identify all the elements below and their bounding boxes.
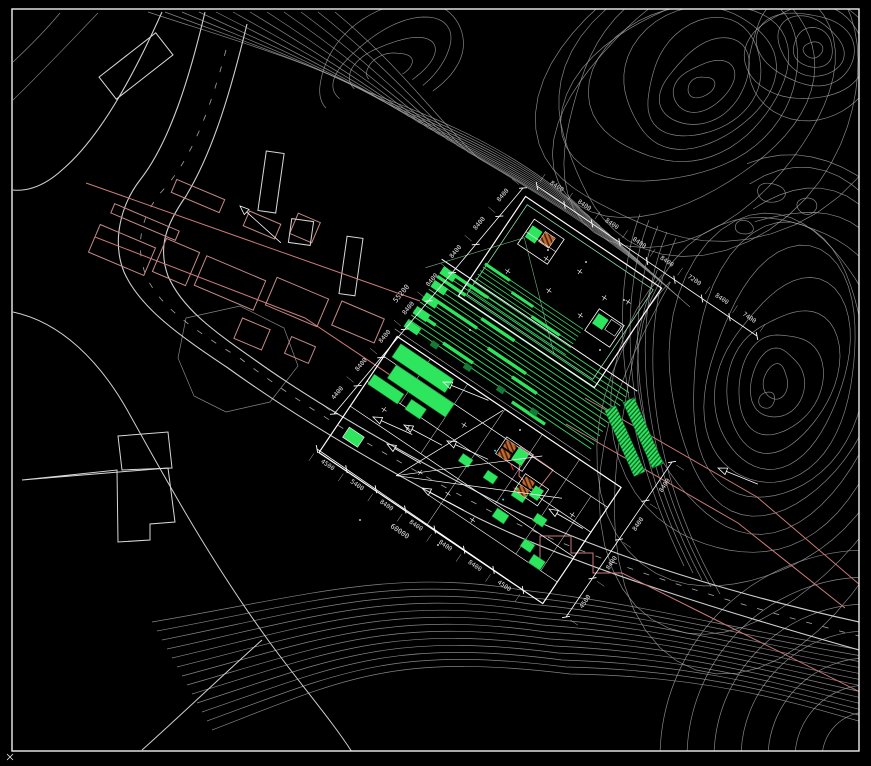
leader-arrow [718, 468, 758, 484]
site-plan-canvas: 4400840084008400840084008400840055200840… [0, 0, 871, 766]
svg-text:8400: 8400 [604, 217, 620, 231]
dimension-chain-sw: 450054008400840084008400450060000 [309, 445, 524, 602]
svg-text:4400: 4400 [330, 385, 345, 401]
cad-drawing: Architectural site plan - CAD drawing wi… [0, 0, 871, 766]
annotation-arrows [240, 206, 758, 546]
svg-text:8400: 8400 [714, 292, 730, 306]
svg-text:7200: 7200 [686, 273, 702, 287]
svg-text:8400: 8400 [378, 328, 393, 344]
svg-text:8400: 8400 [631, 236, 647, 250]
svg-text:55200: 55200 [392, 283, 412, 304]
leader-arrow [240, 206, 281, 243]
svg-text:8400: 8400 [496, 187, 511, 203]
svg-text:8400: 8400 [472, 215, 487, 231]
leader-arrow [549, 509, 583, 529]
svg-text:60000: 60000 [389, 522, 411, 541]
leader-arrow [387, 444, 421, 464]
svg-text:7400: 7400 [741, 311, 757, 325]
corner-marker [7, 754, 13, 760]
svg-text:8400: 8400 [448, 244, 463, 260]
svg-text:8400: 8400 [659, 255, 675, 269]
